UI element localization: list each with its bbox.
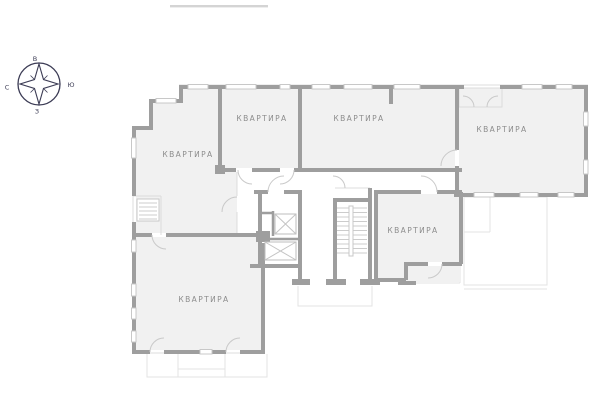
apartment-5-entry[interactable] [406, 266, 459, 282]
elevator-2-icon [265, 242, 296, 260]
elevator-1-icon [275, 214, 296, 234]
compass-letter-bottom: З [35, 108, 39, 116]
compass-rose-icon: В Ю С З [5, 55, 75, 116]
entrance-porch [298, 286, 372, 306]
apartment-region-5[interactable]: КВАРТИРА [378, 194, 459, 282]
apartment-regions: КВАРТИРА КВАРТИРА КВАРТИРА КВАРТИРА КВАР… [136, 88, 584, 350]
apartment-3-label: КВАРТИРА [333, 114, 384, 123]
apartment-2-label: КВАРТИРА [236, 114, 287, 123]
balcony-left [147, 354, 178, 377]
entrance-steps [137, 199, 159, 221]
compass-letter-top: В [33, 55, 37, 63]
apartment-4-room[interactable] [459, 88, 584, 193]
apartment-region-4[interactable]: КВАРТИРА [459, 88, 584, 193]
apartment-3-room[interactable] [302, 88, 455, 168]
apartment-6-label: КВАРТИРА [178, 295, 229, 304]
apartment-region-2[interactable]: КВАРТИРА [222, 88, 298, 168]
staircase-icon [337, 206, 367, 256]
floor-plan-page: В Ю С З КВАРТИРА КВАРТИРА КВАРТИРА КВАРТ… [0, 0, 600, 400]
apartment-region-3[interactable]: КВАРТИРА [302, 88, 455, 168]
apartment-1-label: КВАРТИРА [162, 150, 213, 159]
compass-letter-right: Ю [67, 81, 74, 89]
balcony-right [225, 354, 267, 377]
apartment-region-6[interactable]: КВАРТИРА [136, 237, 262, 350]
floor-plan-svg: В Ю С З КВАРТИРА КВАРТИРА КВАРТИРА КВАРТ… [0, 0, 600, 400]
apartment-2-room[interactable] [222, 88, 298, 168]
apartment-4-label: КВАРТИРА [476, 125, 527, 134]
terrace [464, 197, 547, 289]
page-top-divider [170, 5, 268, 7]
apartment-6-room[interactable] [136, 237, 262, 350]
balcony-middle [178, 369, 225, 377]
apartment-5-label: КВАРТИРА [387, 226, 438, 235]
compass-letter-left: С [5, 84, 10, 92]
